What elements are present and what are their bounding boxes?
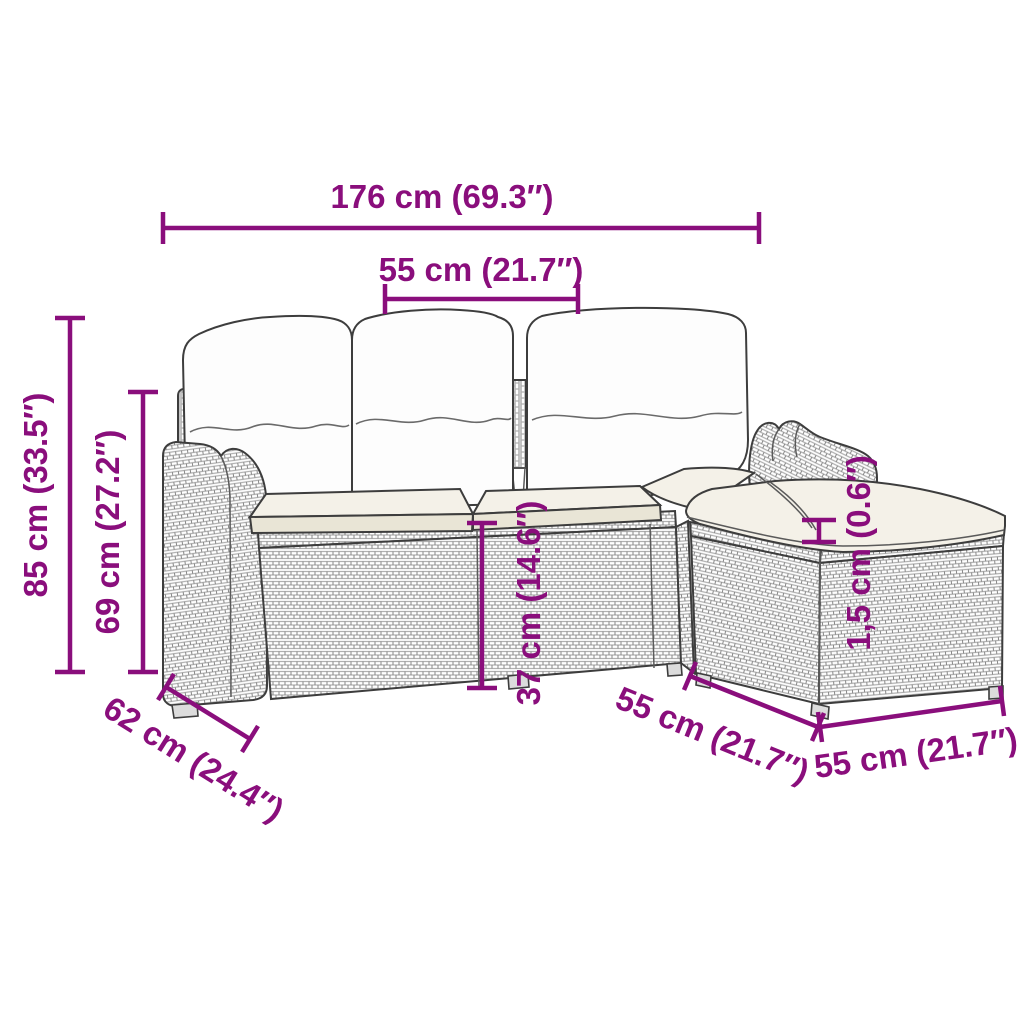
seat-cushion-1-top [250,489,473,517]
dimension-seat-width: 55 cm (21.7″) [379,251,584,314]
sofa-body-front [259,527,681,699]
dimension-label-cushion-thickness: 1,5 cm (0.6″) [840,455,877,651]
left-armrest [163,442,267,706]
dimension-total-height: 85 cm (33.5″) [17,318,85,672]
dimension-label-seat-width: 55 cm (21.7″) [379,251,584,288]
dimension-label-seat-height: 37 cm (14.6″) [510,501,547,706]
dimension-line [820,701,1002,727]
dimension-label-total-width: 176 cm (69.3″) [330,178,553,215]
diagram-canvas: 176 cm (69.3″) 55 cm (21.7″) 85 cm (33.5… [0,0,1024,1024]
seat-cushion-1-front [250,514,473,533]
foot [667,663,682,676]
dimension-label-total-height: 85 cm (33.5″) [17,393,54,598]
back-pillow-middle [352,309,513,508]
sofa-illustration [163,308,1005,719]
dimension-label-back-height: 69 cm (27.2″) [89,430,126,635]
left-armrest-body [163,442,267,706]
ottoman-corner-edge [819,549,820,704]
dimension-total-width: 176 cm (69.3″) [163,178,759,244]
dimension-back-height: 69 cm (27.2″) [89,392,158,672]
sofa-body [258,511,694,699]
dimension-label-ottoman-width: 55 cm (21.7″) [812,720,1020,785]
product-dimension-diagram: 176 cm (69.3″) 55 cm (21.7″) 85 cm (33.5… [0,0,1024,1024]
